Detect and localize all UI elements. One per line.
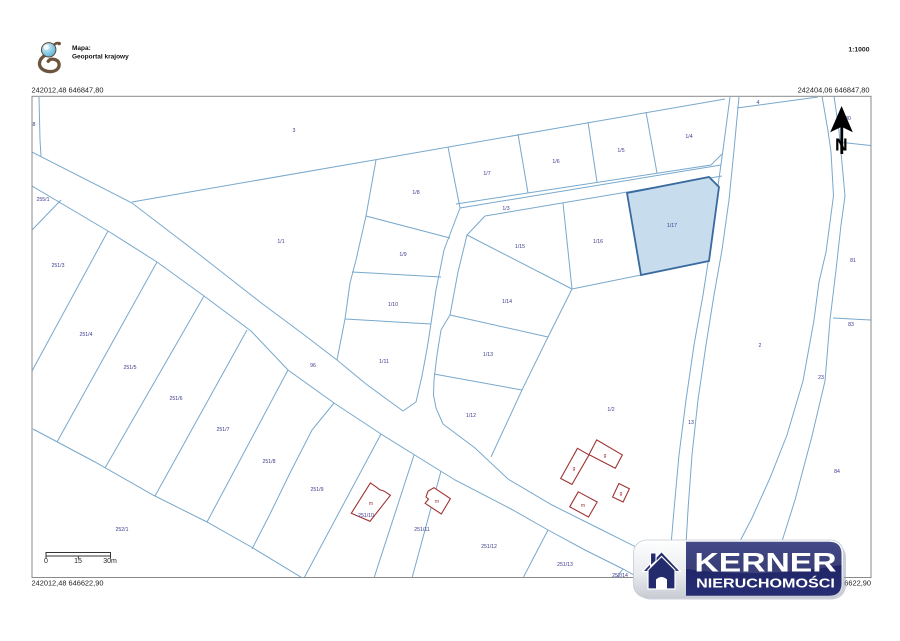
svg-text:251/4: 251/4 — [80, 332, 93, 338]
svg-text:252/14: 252/14 — [612, 573, 628, 579]
svg-text:251/13: 251/13 — [557, 562, 573, 568]
svg-text:1/9: 1/9 — [399, 252, 406, 258]
svg-text:15: 15 — [74, 558, 82, 565]
svg-text:1/10: 1/10 — [388, 302, 398, 308]
svg-text:251/8: 251/8 — [263, 459, 276, 465]
svg-text:g: g — [573, 466, 576, 472]
svg-text:1/1: 1/1 — [277, 239, 284, 245]
svg-text:251/11: 251/11 — [414, 527, 430, 533]
svg-text:30m: 30m — [103, 558, 117, 565]
svg-text:251/3: 251/3 — [52, 263, 65, 269]
svg-text:81: 81 — [850, 258, 856, 264]
svg-text:N: N — [835, 135, 848, 155]
svg-text:83: 83 — [848, 322, 854, 328]
svg-text:2: 2 — [759, 343, 762, 349]
svg-text:13: 13 — [688, 420, 694, 426]
svg-text:Geoportal krajowy: Geoportal krajowy — [72, 54, 129, 61]
svg-text:242404,06 646847,80: 242404,06 646847,80 — [798, 86, 870, 95]
svg-text:1/4: 1/4 — [685, 134, 692, 140]
svg-text:242012,48 646847,80: 242012,48 646847,80 — [32, 86, 104, 95]
svg-text:1/15: 1/15 — [515, 244, 525, 250]
svg-text:84: 84 — [834, 469, 840, 475]
svg-text:3: 3 — [293, 128, 296, 134]
svg-text:0: 0 — [44, 558, 48, 565]
svg-text:1/16: 1/16 — [593, 239, 603, 245]
svg-text:1/6: 1/6 — [552, 159, 559, 165]
svg-text:1/11: 1/11 — [379, 359, 389, 365]
svg-text:251/10: 251/10 — [358, 513, 374, 519]
svg-text:1/2: 1/2 — [607, 407, 614, 413]
svg-text:251/6: 251/6 — [170, 396, 183, 402]
svg-text:242012,48 646622,90: 242012,48 646622,90 — [32, 579, 104, 588]
svg-text:1/8: 1/8 — [412, 190, 419, 196]
svg-text:m: m — [435, 499, 439, 505]
svg-text:255/1: 255/1 — [37, 197, 50, 203]
svg-text:252/1: 252/1 — [116, 527, 129, 533]
svg-text:m: m — [581, 503, 585, 509]
svg-text:1/17: 1/17 — [667, 223, 677, 229]
svg-text:1/14: 1/14 — [502, 299, 512, 305]
svg-text:1/3: 1/3 — [502, 206, 509, 212]
svg-text:1:1000: 1:1000 — [848, 47, 869, 54]
svg-text:m: m — [369, 501, 373, 507]
svg-text:Mapa:: Mapa: — [72, 45, 91, 52]
svg-text:1/12: 1/12 — [466, 413, 476, 419]
svg-text:251/5: 251/5 — [124, 365, 137, 371]
svg-text:g: g — [620, 491, 623, 497]
svg-text:4: 4 — [757, 100, 760, 106]
svg-text:KERNER: KERNER — [694, 549, 836, 578]
svg-text:NIERUCHOMOŚCI: NIERUCHOMOŚCI — [696, 575, 835, 591]
svg-text:g: g — [604, 453, 607, 459]
svg-text:251/7: 251/7 — [217, 427, 230, 433]
svg-text:251/12: 251/12 — [481, 544, 497, 550]
svg-text:23: 23 — [818, 375, 824, 381]
svg-text:1/13: 1/13 — [483, 352, 493, 358]
svg-text:1/7: 1/7 — [483, 171, 490, 177]
svg-text:96: 96 — [310, 363, 316, 369]
svg-text:251/9: 251/9 — [311, 487, 324, 493]
svg-text:1/5: 1/5 — [617, 148, 624, 154]
svg-text:8: 8 — [33, 122, 36, 128]
